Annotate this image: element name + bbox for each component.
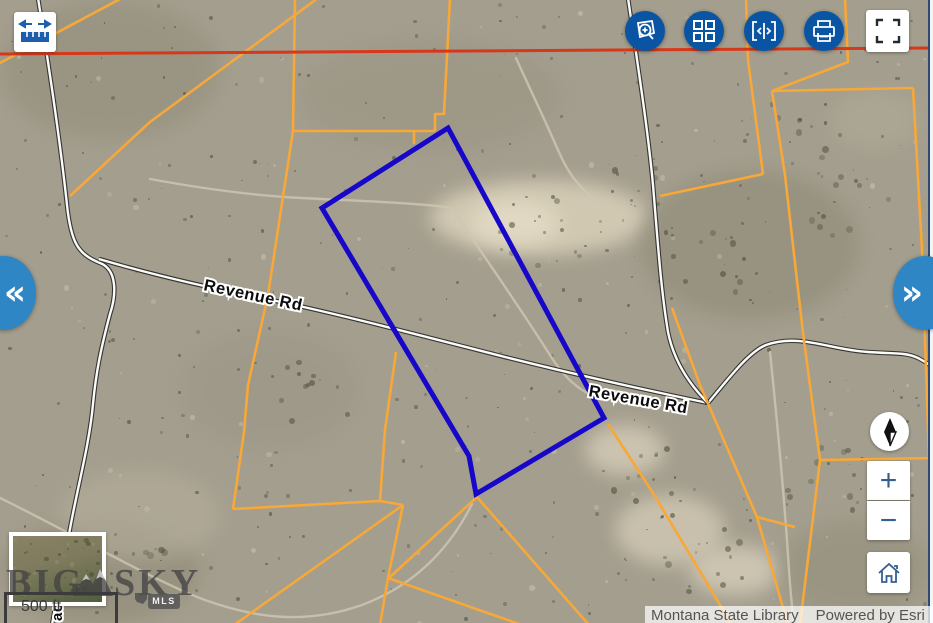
road-north-branch (628, 0, 708, 403)
parcel-boundary-lines (0, 0, 933, 623)
magnifier-area-icon (632, 18, 658, 44)
printer-icon (811, 19, 837, 43)
basemap-gallery-button[interactable] (684, 11, 724, 51)
expand-icon (875, 18, 901, 44)
swipe-button[interactable] (744, 11, 784, 51)
attribution-bar: Montana State LibraryPowered by Esri (645, 606, 933, 623)
home-icon (877, 562, 901, 584)
road-revenue-rd (99, 259, 708, 403)
compass-button[interactable] (870, 412, 909, 451)
road-revenue-rd-east (708, 341, 933, 403)
north-arrow-icon (881, 417, 899, 447)
zoom-out-button[interactable]: − (867, 501, 910, 540)
swipe-brackets-icon (751, 19, 777, 43)
road-north-south (38, 0, 114, 623)
road-label-revenue-rd-1: Revenue Rd (202, 276, 304, 314)
measure-arrows-ruler-icon (18, 18, 52, 46)
scale-bar-label: 500 ft (21, 598, 61, 615)
map-application: Revenue Rd Revenue Rd ack (0, 0, 933, 623)
double-chevron-right-icon: » (901, 276, 923, 310)
measure-button[interactable] (14, 12, 56, 52)
road-labels: Revenue Rd Revenue Rd ack (49, 276, 689, 621)
section-line (0, 48, 933, 54)
fullscreen-button[interactable] (866, 10, 909, 52)
zoom-in-button[interactable]: + (867, 461, 910, 500)
attribution-powered: Powered by Esri (816, 607, 925, 623)
attribution-source: Montana State Library (651, 607, 799, 623)
plus-icon: + (880, 466, 898, 496)
zoom-to-area-button[interactable] (625, 11, 665, 51)
minus-icon: − (880, 506, 898, 536)
subject-parcel-outline[interactable] (322, 128, 604, 494)
print-button[interactable] (804, 11, 844, 51)
scale-bar: 500 ft (4, 592, 118, 623)
home-button[interactable] (867, 552, 910, 593)
map-vector-layers: Revenue Rd Revenue Rd ack (0, 0, 933, 623)
grid-icon (692, 19, 716, 43)
double-chevron-left-icon: « (4, 276, 26, 310)
road-lines (38, 0, 933, 623)
